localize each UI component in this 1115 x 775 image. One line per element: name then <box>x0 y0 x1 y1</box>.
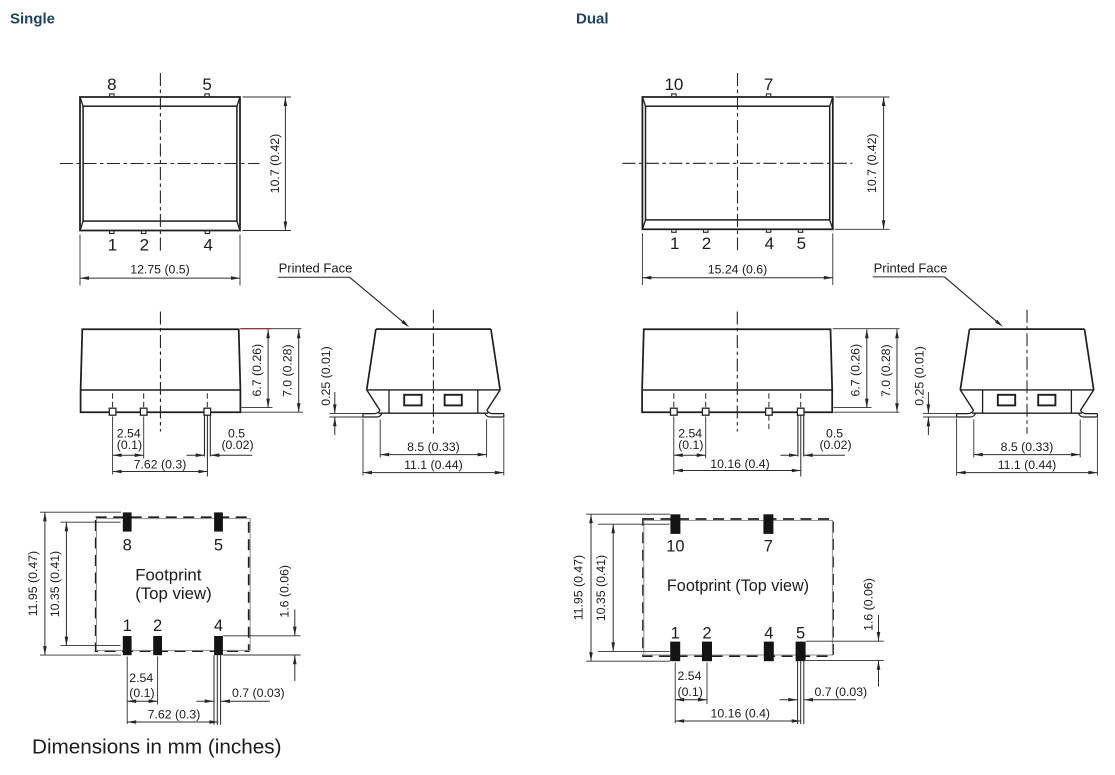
svg-text:0.7 (0.03): 0.7 (0.03) <box>815 685 868 699</box>
svg-text:11.95 (0.47): 11.95 (0.47) <box>572 555 586 620</box>
svg-text:(0.1): (0.1) <box>117 438 142 452</box>
svg-text:Footprint: Footprint <box>135 565 202 584</box>
svg-text:15.24 (0.6): 15.24 (0.6) <box>708 263 767 277</box>
svg-text:Footprint (Top view): Footprint (Top view) <box>667 577 809 595</box>
svg-text:11.1 (0.44): 11.1 (0.44) <box>998 458 1057 472</box>
svg-text:Printed Face: Printed Face <box>874 260 948 275</box>
svg-text:7.62 (0.3): 7.62 (0.3) <box>134 457 187 471</box>
svg-text:10.7 (0.42): 10.7 (0.42) <box>865 133 879 192</box>
svg-text:7.62 (0.3): 7.62 (0.3) <box>148 708 201 722</box>
svg-text:2.54: 2.54 <box>678 669 702 683</box>
svg-text:4: 4 <box>214 617 223 635</box>
svg-text:7.0 (0.28): 7.0 (0.28) <box>281 344 295 397</box>
svg-text:8: 8 <box>123 536 132 554</box>
svg-text:(0.02): (0.02) <box>819 438 851 452</box>
svg-text:4: 4 <box>764 625 773 643</box>
svg-text:8.5 (0.33): 8.5 (0.33) <box>407 440 460 454</box>
svg-text:10: 10 <box>664 75 683 94</box>
svg-text:1.6 (0.06): 1.6 (0.06) <box>277 565 291 618</box>
svg-text:Printed Face: Printed Face <box>279 261 353 276</box>
svg-text:11.95 (0.47): 11.95 (0.47) <box>26 551 40 616</box>
svg-text:2: 2 <box>702 625 711 643</box>
svg-text:(0.1): (0.1) <box>678 685 703 699</box>
svg-text:2.54: 2.54 <box>129 671 153 685</box>
svg-text:11.1 (0.44): 11.1 (0.44) <box>404 458 463 472</box>
svg-text:10.16 (0.4): 10.16 (0.4) <box>710 457 769 471</box>
svg-text:4: 4 <box>765 234 774 253</box>
svg-text:12.75 (0.5): 12.75 (0.5) <box>130 263 189 277</box>
svg-text:0.25 (0.01): 0.25 (0.01) <box>913 346 927 405</box>
svg-text:7: 7 <box>764 538 773 556</box>
svg-text:10.35 (0.41): 10.35 (0.41) <box>48 551 62 617</box>
svg-text:7.0 (0.28): 7.0 (0.28) <box>879 344 893 397</box>
svg-text:5: 5 <box>796 625 805 643</box>
svg-text:Single: Single <box>10 11 55 28</box>
svg-text:7: 7 <box>764 75 773 94</box>
svg-text:0.7 (0.03): 0.7 (0.03) <box>232 686 285 700</box>
svg-text:6.7 (0.26): 6.7 (0.26) <box>250 344 264 397</box>
svg-text:1: 1 <box>123 617 132 635</box>
svg-text:1: 1 <box>671 625 680 643</box>
svg-text:8.5 (0.33): 8.5 (0.33) <box>1001 440 1054 454</box>
svg-text:(0.1): (0.1) <box>129 686 154 700</box>
svg-text:5: 5 <box>214 536 223 554</box>
svg-text:1: 1 <box>670 234 679 253</box>
svg-text:2: 2 <box>140 235 149 254</box>
svg-text:(0.1): (0.1) <box>678 438 703 452</box>
svg-text:4: 4 <box>203 235 212 254</box>
svg-text:10.35 (0.41): 10.35 (0.41) <box>594 555 608 621</box>
svg-text:8: 8 <box>107 75 116 94</box>
svg-text:6.7 (0.26): 6.7 (0.26) <box>848 344 862 397</box>
svg-text:5: 5 <box>202 75 211 94</box>
svg-text:2: 2 <box>153 617 162 635</box>
svg-text:2: 2 <box>702 234 711 253</box>
svg-text:5: 5 <box>797 234 806 253</box>
svg-text:1.6 (0.06): 1.6 (0.06) <box>862 578 876 631</box>
svg-text:(0.02): (0.02) <box>221 438 253 452</box>
svg-text:1: 1 <box>108 235 117 254</box>
svg-text:10.16 (0.4): 10.16 (0.4) <box>711 706 770 720</box>
svg-text:10: 10 <box>666 538 684 556</box>
svg-text:10.7 (0.42): 10.7 (0.42) <box>268 134 282 193</box>
svg-text:0.25 (0.01): 0.25 (0.01) <box>319 346 333 405</box>
svg-text:(Top view): (Top view) <box>135 584 211 603</box>
svg-text:Dimensions in mm (inches): Dimensions in mm (inches) <box>32 736 281 759</box>
svg-text:Dual: Dual <box>576 11 609 28</box>
